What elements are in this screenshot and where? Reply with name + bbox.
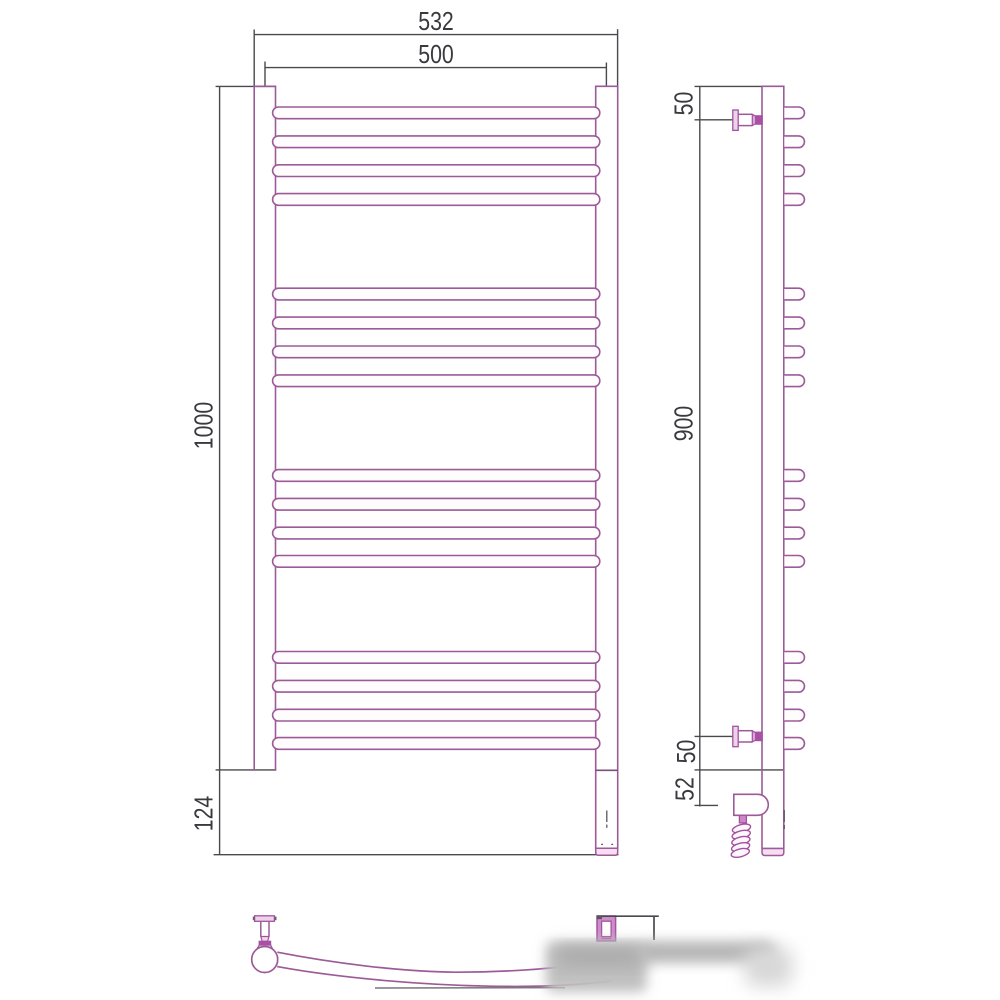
svg-text:124: 124 <box>190 796 220 832</box>
svg-text:50: 50 <box>670 92 700 116</box>
svg-text:52: 52 <box>671 777 701 801</box>
svg-text:532: 532 <box>418 7 454 37</box>
svg-text:500: 500 <box>418 40 454 70</box>
svg-text:900: 900 <box>670 406 700 442</box>
svg-text:50: 50 <box>672 740 702 764</box>
svg-text:1000: 1000 <box>190 402 220 449</box>
